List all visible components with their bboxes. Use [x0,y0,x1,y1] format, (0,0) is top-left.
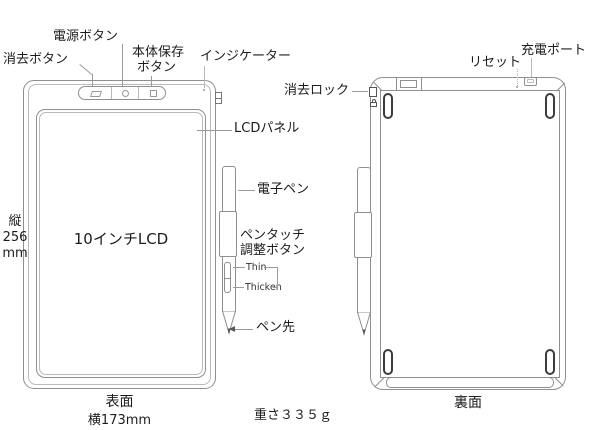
leader-pen-thin [233,267,245,268]
front-caption: 表面 [23,391,216,411]
label-pen-adjust-line1: ペンタッチ [240,228,305,243]
leader-charge-port [531,58,532,77]
label-save-button: 本体保存 ボタン [132,45,184,75]
label-pen-thin: Thin [246,263,266,273]
bracket-vert [277,267,278,288]
leader-lcd-panel [197,130,232,131]
save-button [139,87,167,99]
height-dim-line1: 縦 [1,214,29,230]
label-erase-button: 消去ボタン [3,53,68,67]
label-height-dimension: 縦 256 mm [1,214,29,262]
erase-lock-switch [369,87,377,97]
leader-erase-button [92,74,93,87]
back-panel [380,90,560,378]
stylus-taper [222,311,236,337]
height-dim-line2: 256 [1,230,29,246]
label-pen-tip: ペン先 [256,321,295,335]
charge-port-inner [527,79,534,83]
indicator-led [203,89,205,91]
hanger-slot-inner [400,80,417,88]
pen-adjust-button [224,262,231,293]
leader-erase-button-diag [79,64,92,75]
diagram-canvas: 10インチLCD [0,0,600,430]
foot-bottom-left [383,349,393,375]
leader-erase-lock [352,91,368,92]
label-charge-port: 充電ポート [521,44,586,58]
bottom-edge-band [386,377,554,388]
label-power-button: 電源ボタン [53,30,118,44]
power-button [112,87,138,99]
strap-hook [215,92,222,104]
strap-hook-line [216,98,221,99]
label-reset: リセット [469,56,521,70]
label-indicator: インジケーター [200,50,291,64]
leader-pen-thicken [233,287,244,288]
height-dim-line3: mm [1,246,29,262]
label-stylus: 電子ペン [257,183,309,197]
label-lcd-panel: LCDパネル [234,122,299,136]
stylus-back-taper [357,312,371,338]
leader-power-button [122,44,123,87]
eraser-icon [90,91,102,97]
stylus-grip [219,211,237,257]
pen-tip-arrow-icon [229,326,235,332]
erase-button [79,87,111,99]
label-save-button-line2: ボタン [132,60,184,75]
leader-reset [517,69,518,86]
bracket-bottom [273,287,277,288]
pen-thin-half [225,263,230,279]
stylus-front [219,166,239,336]
stylus-cap [222,166,236,212]
back-caption: 裏面 [370,392,566,412]
leader-stylus [238,190,255,191]
label-save-button-line1: 本体保存 [132,45,184,60]
foot-top-right [545,93,555,119]
save-icon [150,90,157,97]
lock-icon-body [370,102,377,107]
stylus-back-tip [362,330,365,337]
foot-bottom-right [545,349,555,375]
button-bar [78,86,166,100]
stylus-back [354,167,374,337]
screen-size-label: 10インチLCD [36,228,206,249]
label-erase-lock: 消去ロック [284,84,349,98]
reset-pinhole [516,86,518,88]
lock-icon [370,99,378,107]
foot-top-left [383,93,393,119]
label-width-dimension: 横173mm [23,409,216,428]
label-pen-adjust-line2: 調整ボタン [240,243,305,258]
stylus-back-shaft [357,257,371,313]
bracket-top [264,267,277,268]
leader-indicator [204,66,205,88]
label-weight: 重さ３３５ｇ [254,409,332,423]
label-pen-adjust: ペンタッチ 調整ボタン [240,228,305,258]
leader-pen-tip [235,329,253,330]
leader-save-button [151,76,152,87]
power-icon [122,90,129,97]
stylus-back-grip [354,212,372,258]
stylus-back-cap [357,167,371,213]
